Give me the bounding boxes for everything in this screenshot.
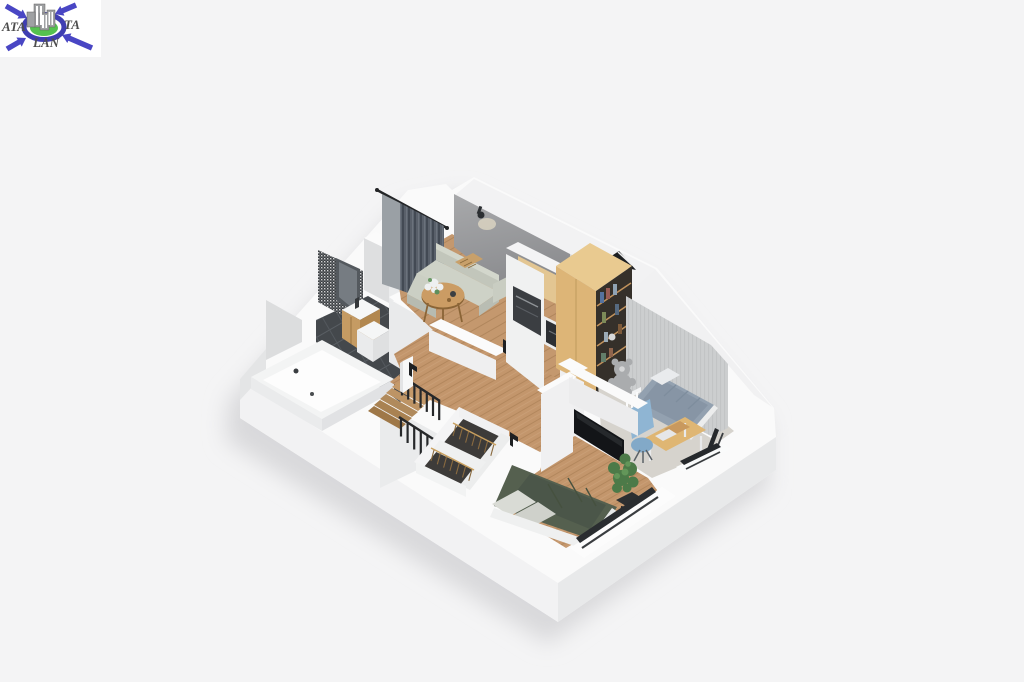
svg-text:TA: TA: [64, 17, 80, 32]
svg-text:ATA: ATA: [1, 19, 26, 34]
svg-text:LAN: LAN: [32, 35, 60, 50]
